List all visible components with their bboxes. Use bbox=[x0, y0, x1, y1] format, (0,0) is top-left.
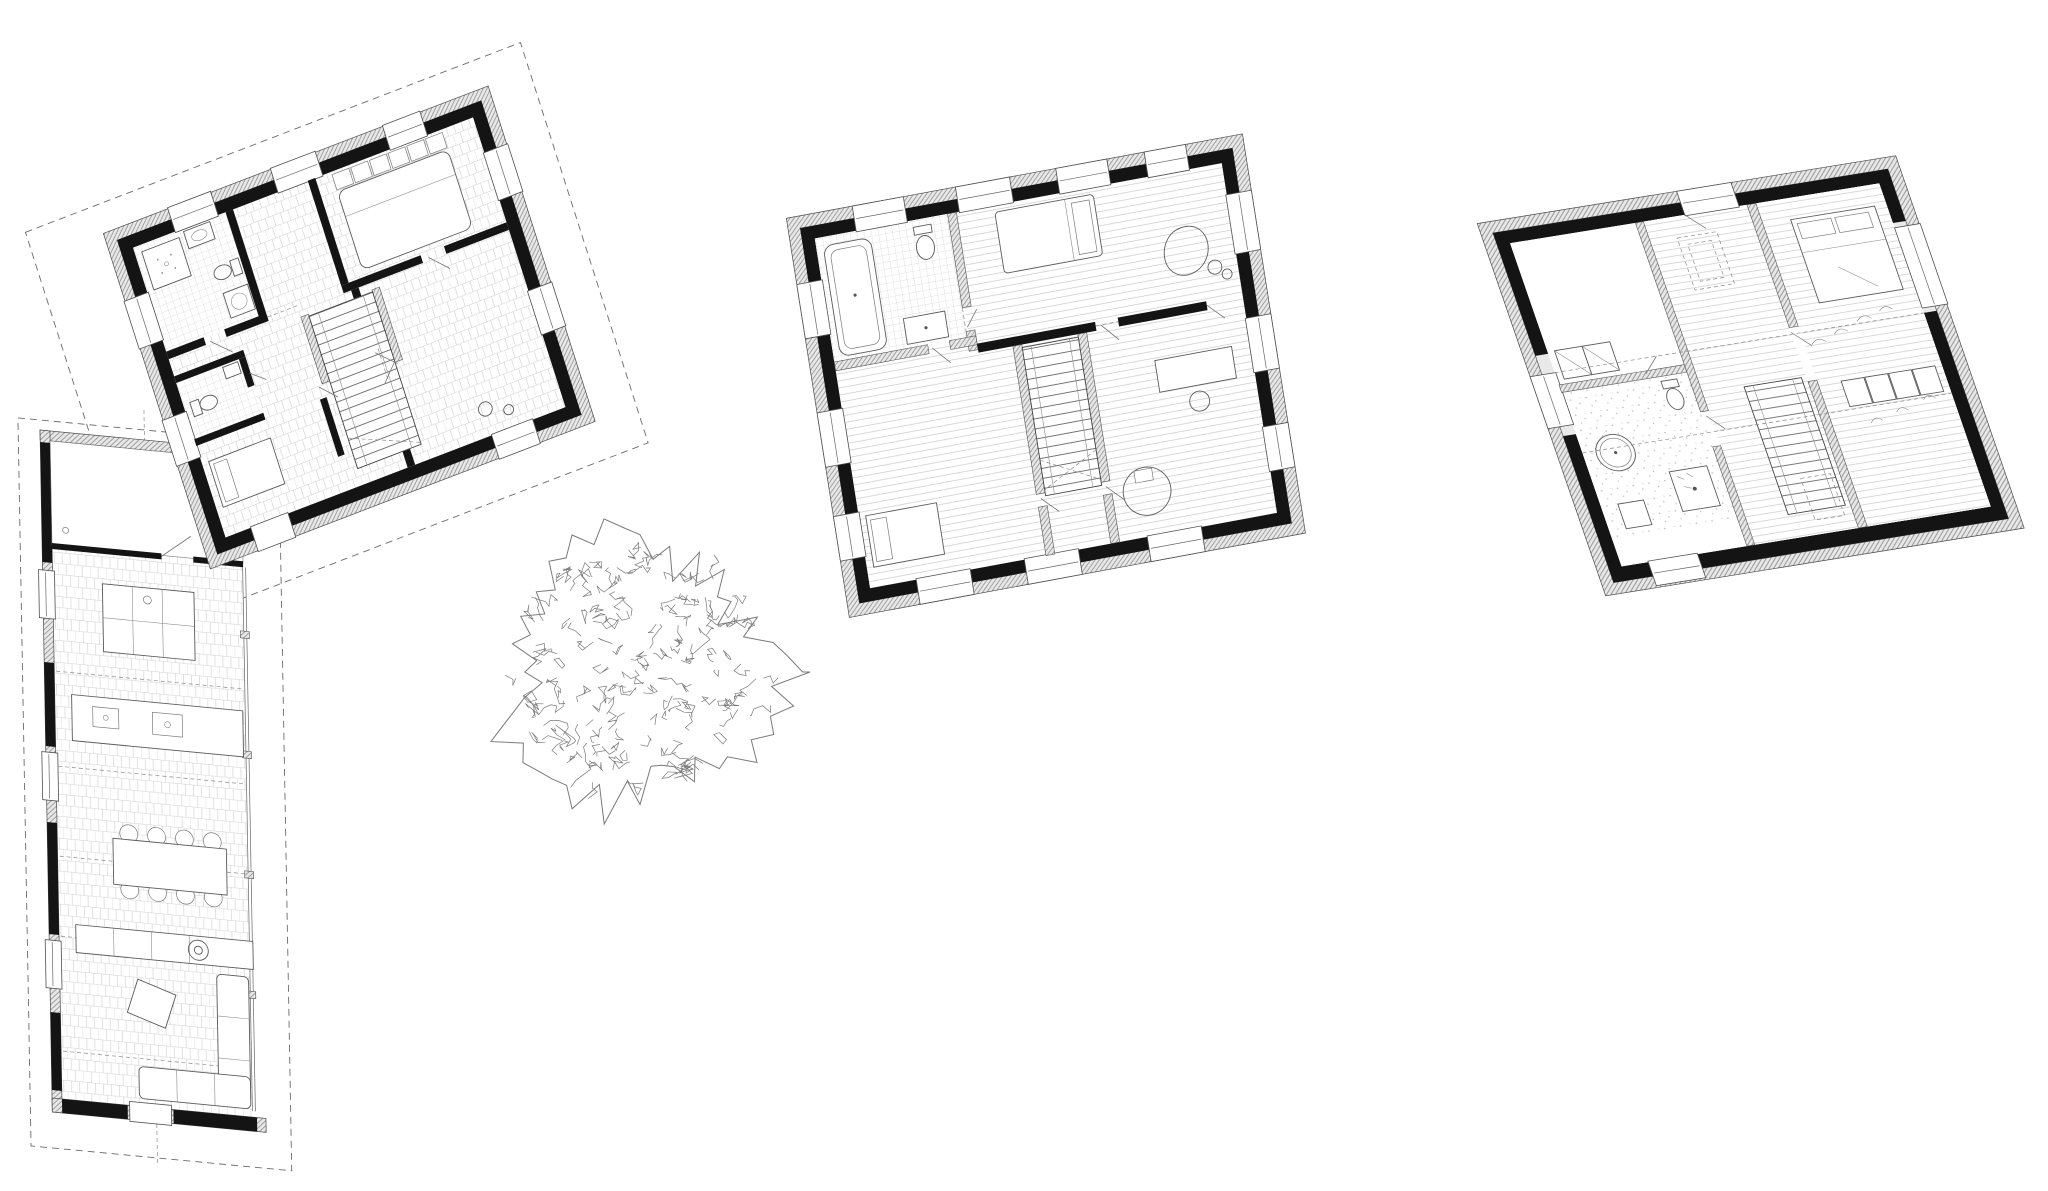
window bbox=[42, 752, 59, 802]
foliage-marks bbox=[505, 543, 778, 799]
kitchen-island bbox=[102, 584, 195, 661]
sink bbox=[152, 712, 182, 737]
window bbox=[45, 940, 62, 990]
floor-drain bbox=[63, 527, 69, 534]
sink bbox=[93, 707, 119, 729]
site-tree bbox=[491, 519, 810, 824]
plan-sheet bbox=[0, 0, 2048, 1191]
attic-floor-plan bbox=[1477, 156, 2025, 596]
ground-floor-plan bbox=[18, 43, 649, 1179]
first-floor-plan bbox=[786, 134, 1305, 618]
window bbox=[39, 570, 56, 620]
entry-door bbox=[130, 1101, 172, 1125]
canopy-outline bbox=[491, 519, 810, 824]
